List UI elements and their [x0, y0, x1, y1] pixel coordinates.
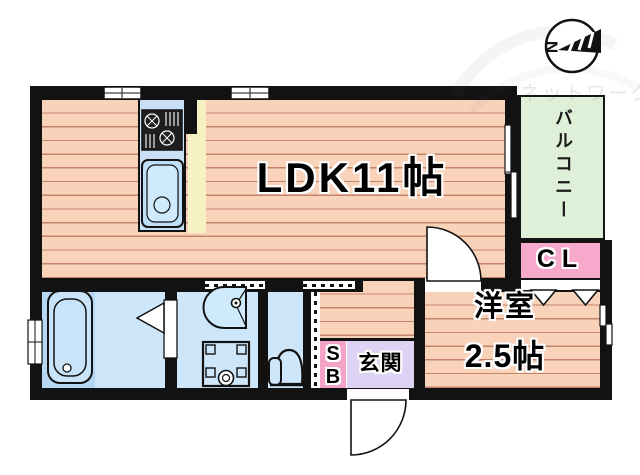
wall-bath-washroom — [165, 283, 177, 388]
ldk-label: LDK11帖 — [232, 156, 472, 200]
compass-icon: N — [542, 20, 601, 72]
entrance-door — [351, 400, 406, 455]
kitchen-counter — [138, 100, 186, 232]
wall-ldk-south-a — [30, 278, 205, 292]
wall-bottom — [30, 388, 612, 400]
western-room-name: 洋室 — [440, 292, 570, 322]
ldk-western-doorway — [425, 279, 481, 292]
wall-kitchen-stub — [186, 100, 197, 134]
shoebox-label: S B — [320, 343, 346, 389]
wall-ldk-south-c — [481, 278, 521, 292]
entrance-label: 玄関 — [347, 353, 414, 375]
balcony-label: バルコニー — [550, 108, 576, 238]
entrance-doorway — [347, 389, 409, 400]
wall-top — [30, 86, 517, 100]
wall-toilet-hall — [303, 292, 311, 388]
compass-needle — [558, 29, 601, 53]
wall-ldk-south-stub — [355, 278, 363, 292]
wall-ldk-balcony — [505, 97, 521, 278]
bathroom-floor — [95, 283, 165, 388]
wall-closet-top-line — [517, 240, 612, 243]
wall-washroom-toilet — [258, 283, 268, 388]
washroom-floor — [177, 283, 258, 388]
shoebox-label-s: S — [326, 343, 339, 365]
compass-north-letter: N — [542, 41, 561, 53]
closet-door-strip — [521, 278, 600, 292]
toilet-door-dashed — [311, 292, 320, 388]
hall-dashed-opening — [303, 278, 355, 292]
wall-left — [30, 86, 42, 400]
closet-label: CL — [521, 246, 600, 272]
western-room-size: 2.5帖 — [430, 340, 580, 374]
floor-plan: ネットワーク N — [0, 0, 640, 475]
washroom-sliding-opening — [205, 278, 265, 292]
line-entrance-top — [318, 338, 414, 341]
toilet-room-floor — [268, 283, 303, 388]
bathtub-base — [42, 283, 95, 388]
wall-right — [600, 240, 612, 400]
wall-hall-western — [414, 278, 425, 390]
wall-ldk-south-b — [265, 278, 303, 292]
shoebox-label-b: B — [326, 366, 340, 388]
